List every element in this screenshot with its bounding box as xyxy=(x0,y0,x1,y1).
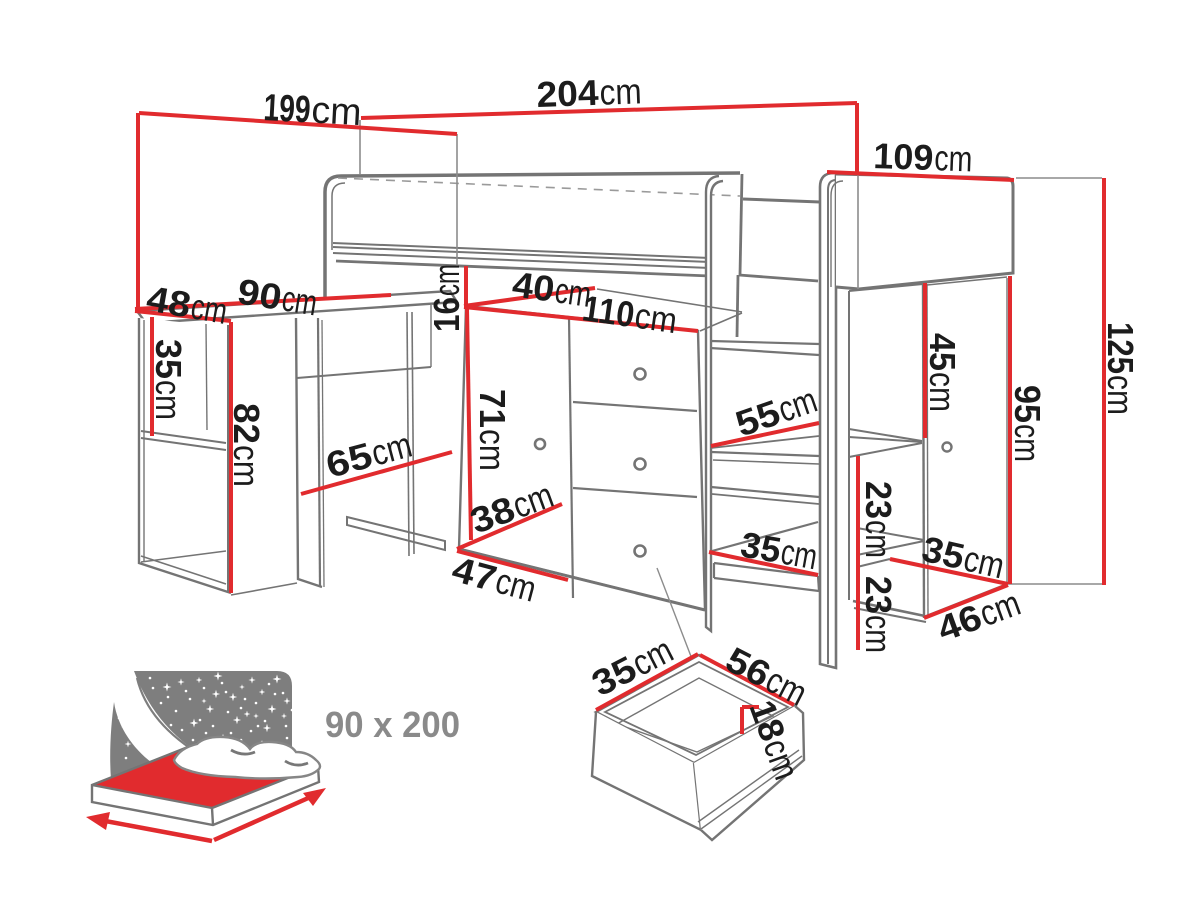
svg-text:16cm: 16cm xyxy=(426,264,467,332)
svg-text:23cm: 23cm xyxy=(858,481,899,558)
svg-text:45cm: 45cm xyxy=(922,333,963,412)
svg-text:90 x 200: 90 x 200 xyxy=(325,704,460,745)
svg-text:71cm: 71cm xyxy=(472,389,513,471)
svg-text:199cm: 199cm xyxy=(263,87,363,134)
svg-text:109cm: 109cm xyxy=(873,135,973,179)
svg-text:35cm: 35cm xyxy=(148,339,189,420)
svg-text:23cm: 23cm xyxy=(858,576,899,653)
svg-text:125cm: 125cm xyxy=(1100,322,1141,415)
svg-text:95cm: 95cm xyxy=(1007,385,1048,462)
svg-text:204cm: 204cm xyxy=(536,70,642,115)
svg-text:82cm: 82cm xyxy=(226,403,267,487)
